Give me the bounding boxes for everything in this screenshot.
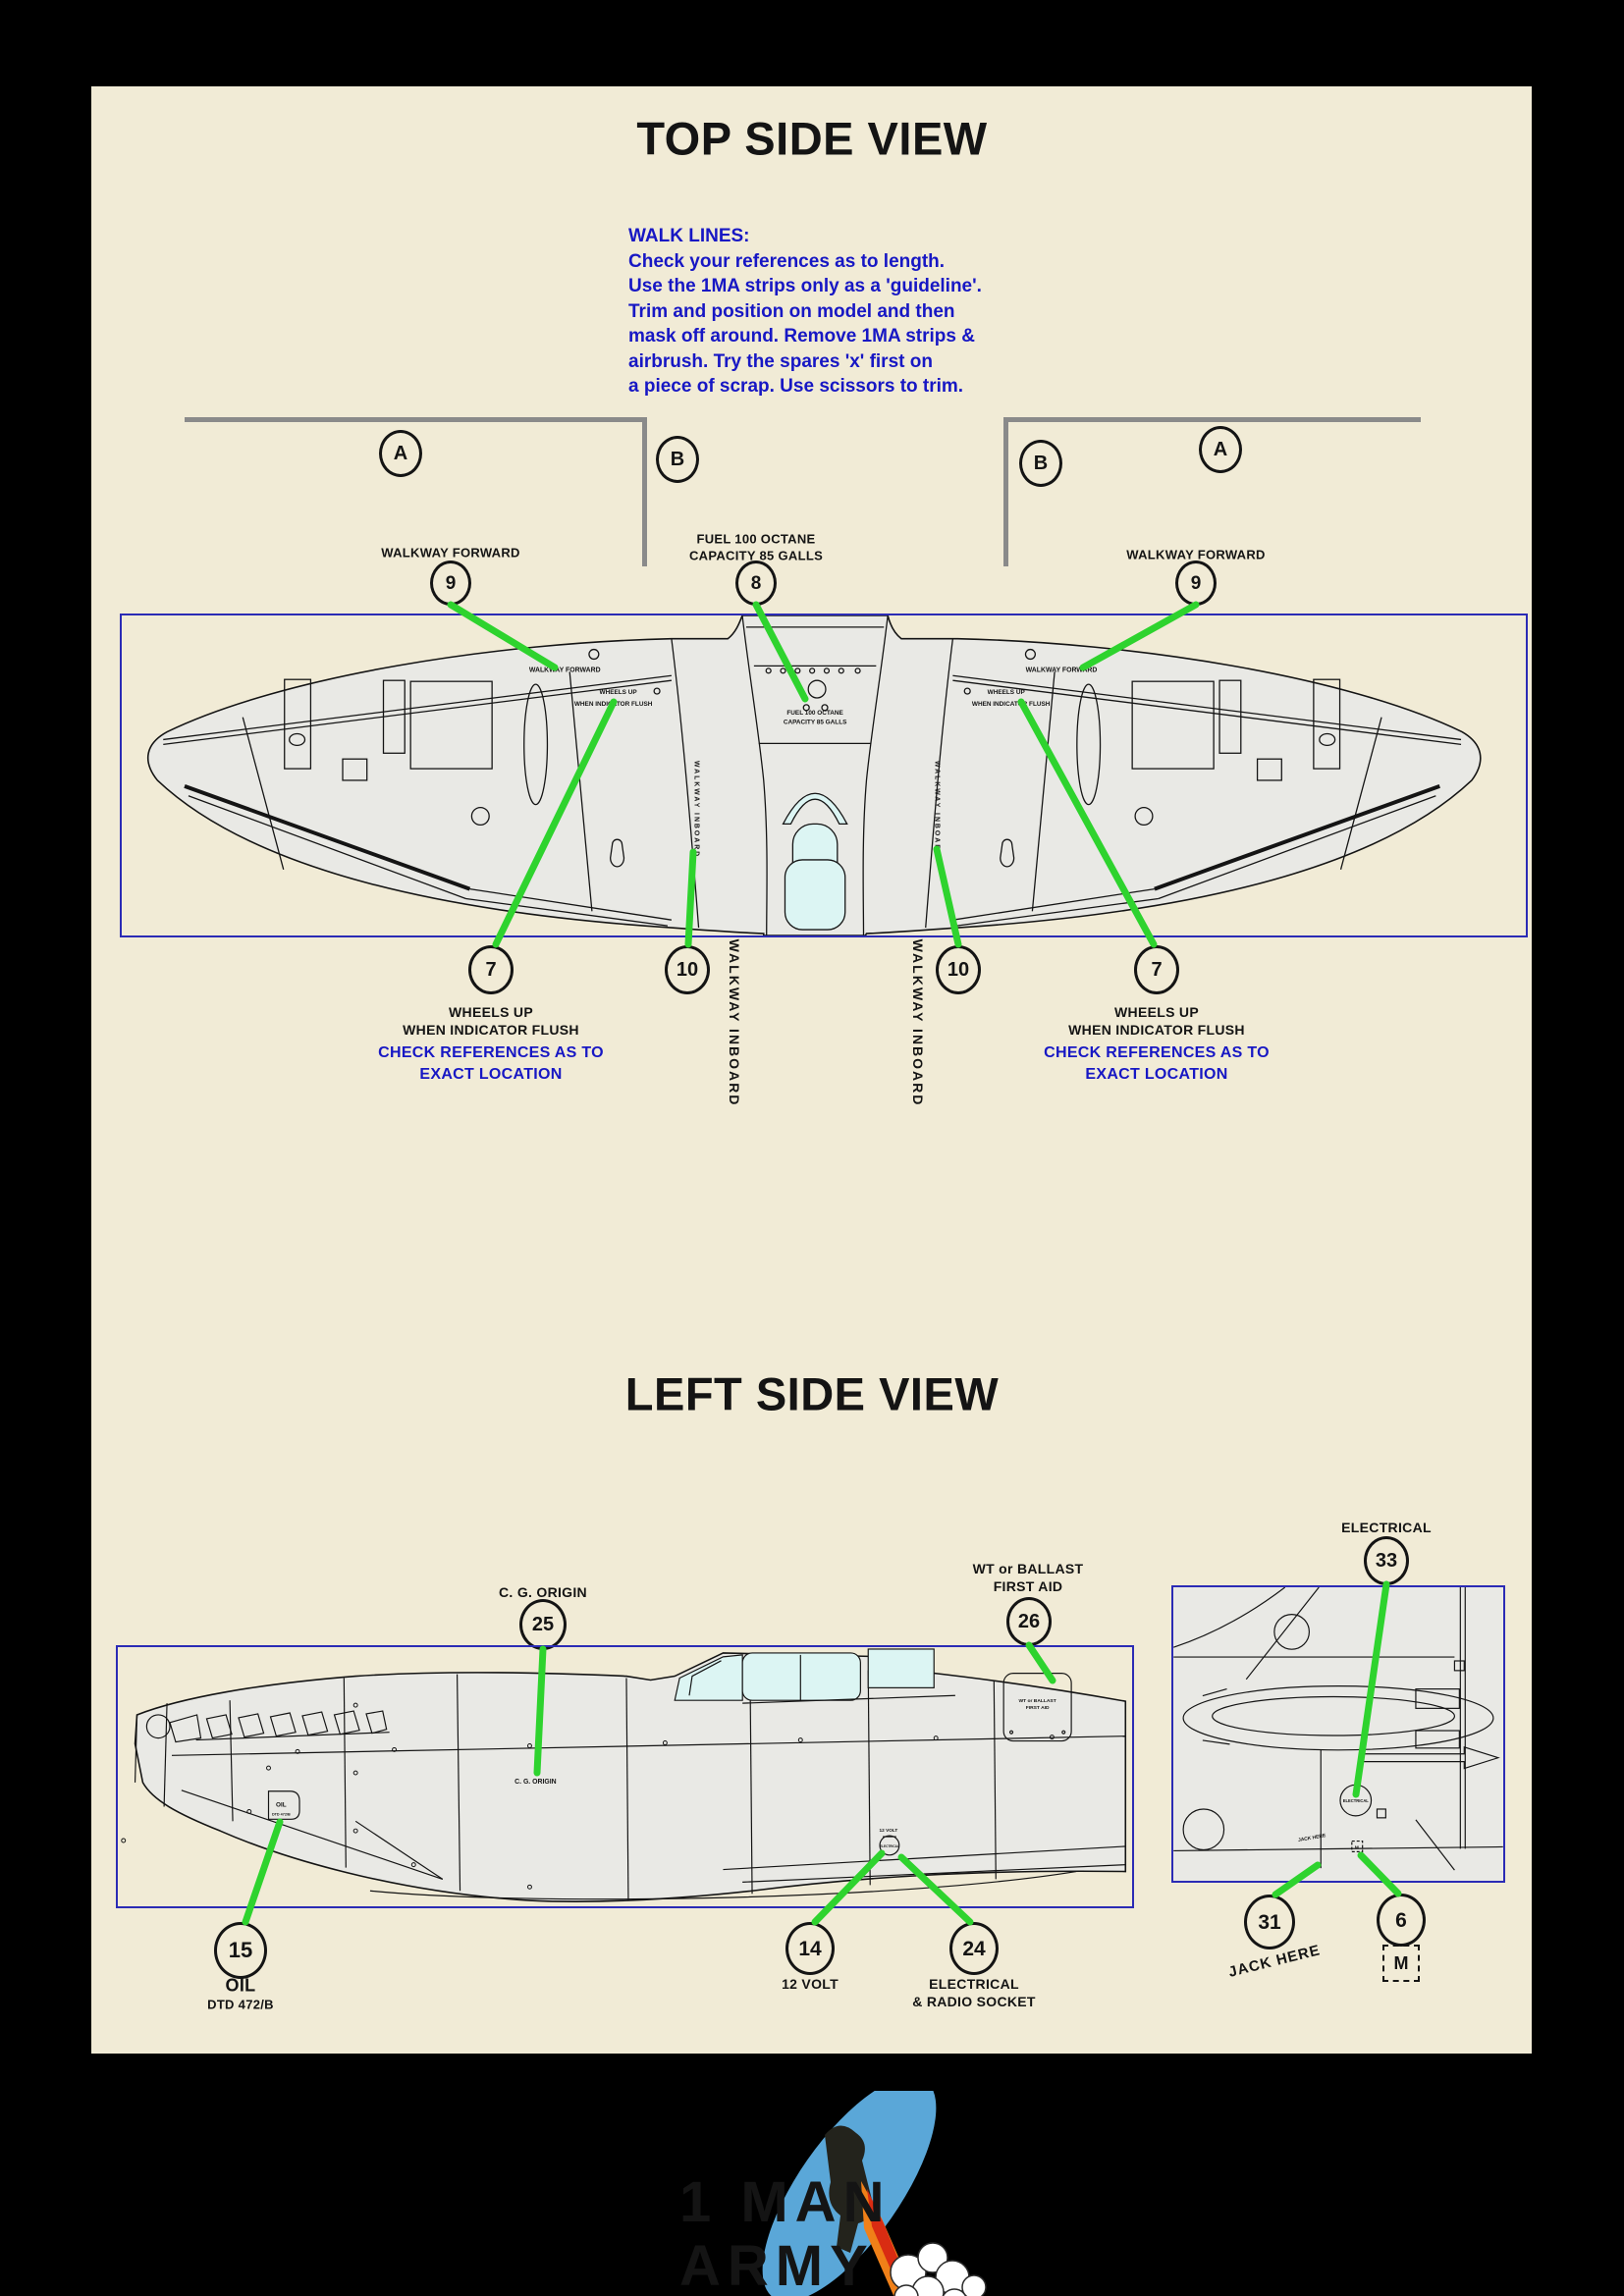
first-aid-label: FIRST AID: [994, 1578, 1063, 1594]
wheels-up-label-right: WHEELS UP: [1114, 1004, 1199, 1020]
left-side-view-title: LEFT SIDE VIEW: [625, 1367, 999, 1421]
marker-b-right: B: [1019, 440, 1062, 487]
one-man-army-logo: 1 MAN ARMY: [628, 2091, 1001, 2296]
walkway-inboard-label-right: WALKWAY INBOARD: [910, 939, 926, 1107]
callout-9-left: 9: [430, 561, 471, 606]
check-refs-label-left: CHECK REFERENCES AS TO: [378, 1044, 604, 1062]
callout-8: 8: [735, 561, 777, 606]
oil-label: OIL: [226, 1976, 256, 1997]
wheels-flush-label-right: WHEN INDICATOR FLUSH: [1068, 1022, 1245, 1038]
electrical-socket-label1: ELECTRICAL: [929, 1976, 1019, 1992]
note-line: airbrush. Try the spares 'x' first on: [628, 349, 982, 375]
stencil-cg-origin: C. G. ORIGIN: [514, 1779, 556, 1786]
callout-10-right: 10: [936, 945, 981, 994]
left-view-tail-detail-drawing: ELECTRICAL JACK HERE M: [1171, 1585, 1505, 1883]
wheels-flush-label-left: WHEN INDICATOR FLUSH: [403, 1022, 579, 1038]
wt-ballast-label: WT or BALLAST: [973, 1561, 1084, 1576]
stencil-fuel-line1: FUEL 100 OCTANE: [786, 710, 843, 717]
stencil-walkway-forward-right: WALKWAY FORWARD: [1026, 667, 1098, 673]
stencil-first-aid: FIRST AID: [1026, 1705, 1050, 1711]
logo-line1: 1 MAN: [679, 2170, 891, 2234]
stencil-oil: OIL: [276, 1802, 287, 1809]
top-view-wing-drawing: WALKWAY FORWARD WALKWAY FORWARD WHEELS U…: [120, 614, 1528, 937]
stencil-12volt: 12 VOLT: [880, 1828, 898, 1834]
marker-a-left: A: [379, 430, 422, 477]
oil-dtd-label: DTD 472/B: [207, 1998, 274, 2012]
stencil-wheels-flush-left: WHEN INDICATOR FLUSH: [574, 701, 653, 708]
callout-15: 15: [214, 1922, 267, 1979]
callout-24: 24: [949, 1922, 999, 1975]
fuselage-silhouette: [135, 1653, 1126, 1901]
note-line: Use the 1MA strips only as a 'guideline'…: [628, 274, 982, 299]
marker-b-left: B: [656, 436, 699, 483]
stencil-fuel-line2: CAPACITY 85 GALLS: [784, 720, 847, 726]
m-dashed-box: M: [1382, 1945, 1420, 1982]
stencil-wheels-up-left: WHEELS UP: [600, 689, 638, 696]
note-line: mask off around. Remove 1MA strips &: [628, 324, 982, 349]
check-refs-label-right: CHECK REFERENCES AS TO: [1044, 1044, 1270, 1062]
wheels-up-label-left: WHEELS UP: [449, 1004, 533, 1020]
marker-a-right: A: [1199, 426, 1242, 473]
callout-31: 31: [1244, 1895, 1295, 1949]
callout-10-left: 10: [665, 945, 710, 994]
callout-9-right: 9: [1175, 561, 1217, 606]
cg-origin-label: C. G. ORIGIN: [499, 1584, 587, 1600]
left-view-fuselage-drawing: OIL DTD 472/B C. G. ORIGIN WT or BALLAST…: [116, 1645, 1134, 1908]
stencil-electrical: ELECTRICAL: [1343, 1798, 1370, 1803]
callout-14: 14: [785, 1922, 835, 1975]
callout-33: 33: [1364, 1536, 1409, 1585]
stencil-m: M: [1355, 1844, 1359, 1850]
stencil-electrical-socket: ELECTRICAL: [880, 1844, 899, 1848]
callout-7-left: 7: [468, 945, 514, 994]
instruction-sheet: TOP SIDE VIEW WALK LINES: Check your ref…: [0, 0, 1624, 2296]
walk-lines-note: WALK LINES: Check your references as to …: [628, 224, 982, 400]
callout-7-right: 7: [1134, 945, 1179, 994]
walk-lines-heading: WALK LINES:: [628, 224, 982, 249]
top-side-view-title: TOP SIDE VIEW: [636, 112, 987, 166]
stencil-walkway-inboard-left: WALKWAY INBOARD: [693, 761, 700, 858]
fuel-label-line1: FUEL 100 OCTANE: [696, 532, 815, 547]
walkway-forward-label-left: WALKWAY FORWARD: [381, 546, 520, 561]
callout-6: 6: [1377, 1894, 1426, 1947]
callout-26: 26: [1006, 1597, 1052, 1646]
stencil-walkway-forward-left: WALKWAY FORWARD: [529, 667, 601, 673]
exact-location-label-left: EXACT LOCATION: [419, 1066, 562, 1084]
stencil-wt-ballast: WT or BALLAST: [1019, 1698, 1056, 1704]
stencil-wheels-up-right: WHEELS UP: [988, 689, 1026, 696]
exact-location-label-right: EXACT LOCATION: [1085, 1066, 1227, 1084]
stencil-walkway-inboard-right: WALKWAY INBOARD: [934, 761, 941, 858]
note-line: a piece of scrap. Use scissors to trim.: [628, 374, 982, 400]
stencil-wheels-flush-right: WHEN INDICATOR FLUSH: [972, 701, 1051, 708]
note-line: Check your references as to length.: [628, 249, 982, 275]
callout-25: 25: [519, 1599, 567, 1650]
volt-label: 12 VOLT: [782, 1976, 839, 1992]
note-line: Trim and position on model and then: [628, 299, 982, 325]
walkway-inboard-label-left: WALKWAY INBOARD: [727, 939, 742, 1107]
electrical-socket-label2: & RADIO SOCKET: [912, 1994, 1036, 2009]
logo-line2: ARMY: [679, 2234, 875, 2296]
cloud-icon: [891, 2243, 986, 2296]
electrical-label: ELECTRICAL: [1341, 1520, 1432, 1535]
stencil-oil-dtd: DTD 472/B: [272, 1812, 291, 1816]
